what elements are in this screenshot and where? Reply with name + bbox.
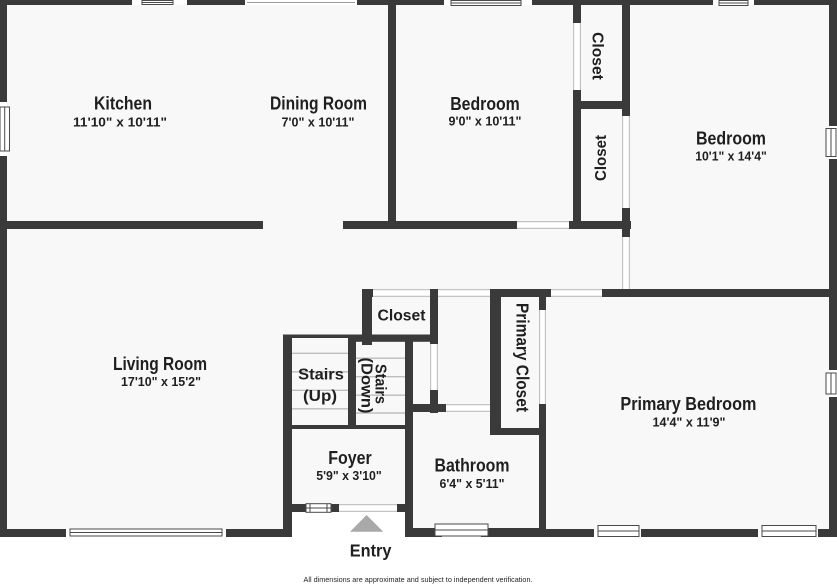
svg-text:Kitchen: Kitchen	[94, 94, 152, 114]
svg-text:10'1" x 14'4": 10'1" x 14'4"	[695, 149, 767, 164]
svg-text:All dimensions are approximate: All dimensions are approximate and subje…	[304, 575, 533, 584]
svg-text:Dining Room: Dining Room	[270, 94, 367, 114]
svg-text:Primary Closet: Primary Closet	[513, 303, 533, 412]
svg-text:(Down): (Down)	[358, 358, 375, 414]
svg-text:Bathroom: Bathroom	[435, 456, 510, 476]
svg-text:14'4" x 11'9": 14'4" x 11'9"	[653, 415, 726, 430]
svg-text:17'10" x 15'2": 17'10" x 15'2"	[121, 374, 201, 389]
svg-text:Closet: Closet	[593, 134, 610, 181]
svg-text:6'4" x 5'11": 6'4" x 5'11"	[440, 476, 505, 491]
svg-text:Primary Bedroom: Primary Bedroom	[620, 394, 756, 414]
svg-text:Closet: Closet	[378, 308, 427, 325]
svg-text:Entry: Entry	[350, 541, 392, 561]
svg-text:Bedroom: Bedroom	[696, 129, 766, 149]
svg-text:11'10" x 10'11": 11'10" x 10'11"	[73, 115, 167, 130]
svg-text:Foyer: Foyer	[328, 448, 372, 468]
svg-text:5'9" x 3'10": 5'9" x 3'10"	[316, 468, 382, 483]
svg-text:Closet: Closet	[589, 32, 606, 80]
svg-text:Bedroom: Bedroom	[450, 94, 520, 114]
svg-text:9'0" x 10'11": 9'0" x 10'11"	[449, 114, 522, 129]
svg-text:7'0" x 10'11": 7'0" x 10'11"	[282, 115, 355, 130]
svg-text:Stairs: Stairs	[298, 367, 344, 384]
svg-text:Living Room: Living Room	[113, 354, 207, 374]
svg-text:(Up): (Up)	[303, 388, 337, 405]
